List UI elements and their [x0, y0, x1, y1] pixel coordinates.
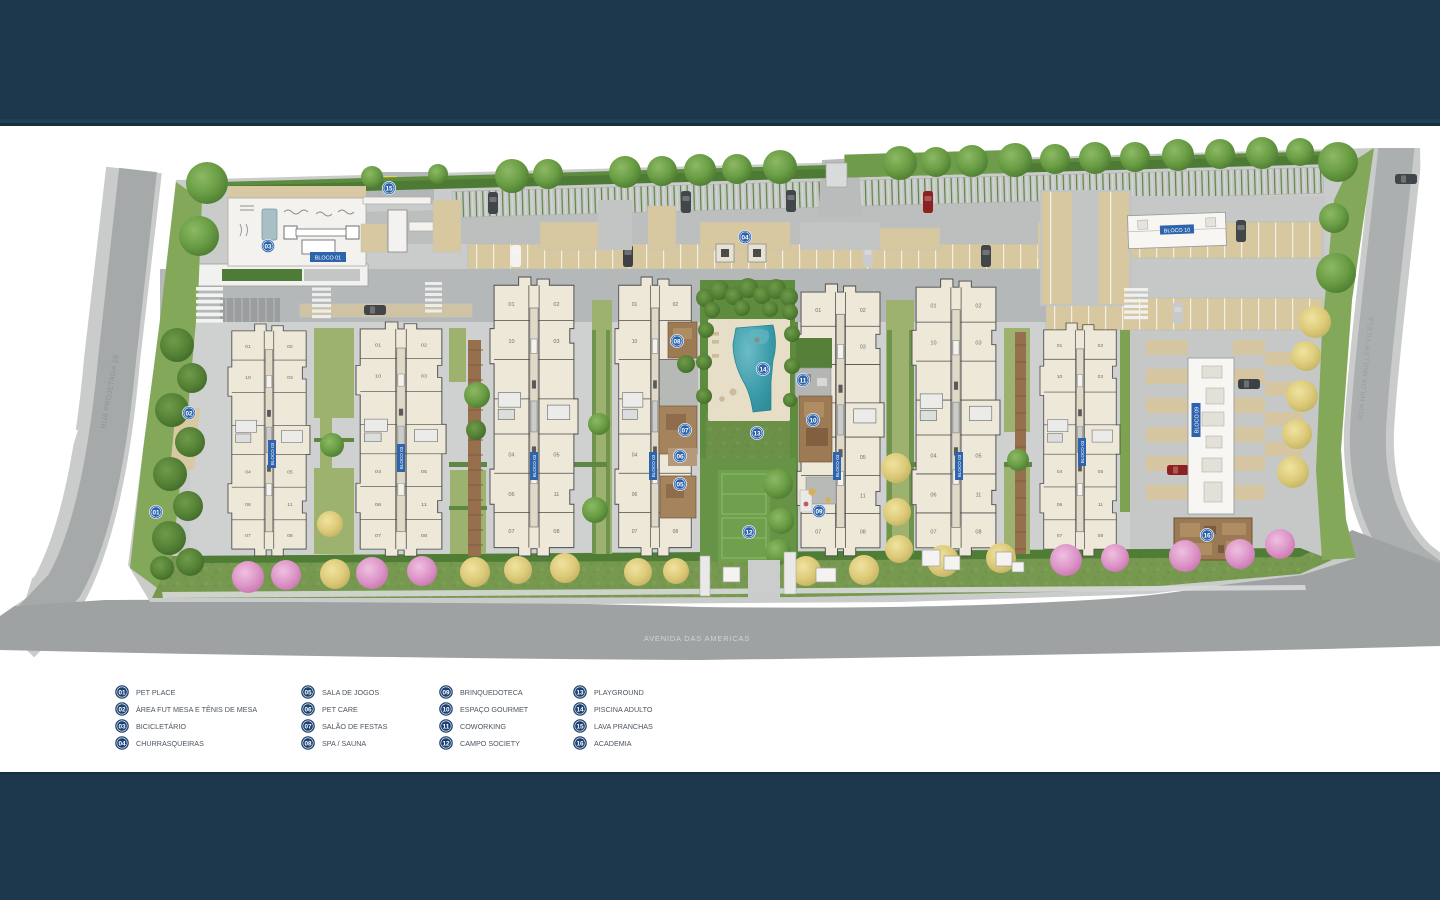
- svg-text:02: 02: [118, 706, 126, 713]
- svg-text:11: 11: [800, 378, 807, 385]
- svg-text:BRINQUEDOTECA: BRINQUEDOTECA: [460, 688, 523, 697]
- svg-text:BLOCO 09: BLOCO 09: [1195, 407, 1201, 433]
- svg-text:BLOCO 01: BLOCO 01: [315, 256, 341, 262]
- svg-text:11: 11: [443, 723, 450, 730]
- svg-text:16: 16: [576, 740, 584, 747]
- svg-text:BLOCO 10: BLOCO 10: [1164, 228, 1191, 235]
- svg-text:01: 01: [152, 510, 160, 517]
- svg-text:09: 09: [442, 689, 450, 696]
- svg-text:13: 13: [576, 689, 584, 696]
- svg-text:ESPAÇO GOURMET: ESPAÇO GOURMET: [460, 705, 529, 714]
- svg-text:12: 12: [442, 740, 450, 747]
- svg-text:08: 08: [304, 740, 312, 747]
- svg-text:06: 06: [676, 454, 684, 461]
- svg-text:BICICLETÁRIO: BICICLETÁRIO: [136, 722, 186, 731]
- svg-text:02: 02: [185, 411, 193, 418]
- svg-text:01: 01: [118, 689, 126, 696]
- svg-text:PISCINA ADULTO: PISCINA ADULTO: [594, 705, 653, 714]
- svg-text:CHURRASQUEIRAS: CHURRASQUEIRAS: [136, 739, 204, 748]
- svg-text:COWORKING: COWORKING: [460, 722, 506, 731]
- svg-text:LAVA PRANCHAS: LAVA PRANCHAS: [594, 722, 653, 731]
- svg-text:15: 15: [576, 723, 584, 730]
- svg-text:PET PLACE: PET PLACE: [136, 688, 176, 697]
- svg-text:ÁREA FUT MESA E TÊNIS DE MESA: ÁREA FUT MESA E TÊNIS DE MESA: [136, 705, 257, 714]
- svg-text:03: 03: [264, 244, 272, 251]
- svg-text:16: 16: [1203, 533, 1211, 540]
- svg-text:03: 03: [118, 723, 126, 730]
- svg-text:06: 06: [304, 706, 312, 713]
- svg-text:05: 05: [676, 482, 684, 489]
- svg-text:SALA DE JOGOS: SALA DE JOGOS: [322, 688, 379, 697]
- svg-text:09: 09: [815, 509, 823, 516]
- svg-text:SPA / SAUNA: SPA / SAUNA: [322, 739, 366, 748]
- svg-text:CAMPO SOCIETY: CAMPO SOCIETY: [460, 739, 520, 748]
- svg-text:05: 05: [304, 689, 312, 696]
- svg-text:ACADEMIA: ACADEMIA: [594, 739, 632, 748]
- svg-text:04: 04: [118, 740, 126, 747]
- svg-text:10: 10: [442, 706, 450, 713]
- svg-text:PET CARE: PET CARE: [322, 705, 358, 714]
- svg-text:13: 13: [753, 431, 761, 438]
- svg-text:04: 04: [741, 235, 749, 242]
- svg-text:07: 07: [681, 428, 689, 435]
- svg-text:PLAYGROUND: PLAYGROUND: [594, 688, 644, 697]
- svg-text:10: 10: [809, 418, 817, 425]
- svg-text:07: 07: [304, 723, 312, 730]
- svg-text:SALÃO DE FESTAS: SALÃO DE FESTAS: [322, 722, 388, 731]
- svg-text:AVENIDA DAS AMERICAS: AVENIDA DAS AMERICAS: [644, 634, 750, 643]
- svg-text:08: 08: [673, 339, 681, 346]
- svg-text:12: 12: [745, 530, 753, 537]
- svg-text:14: 14: [759, 367, 767, 374]
- svg-text:15: 15: [385, 186, 393, 193]
- svg-text:14: 14: [576, 706, 584, 713]
